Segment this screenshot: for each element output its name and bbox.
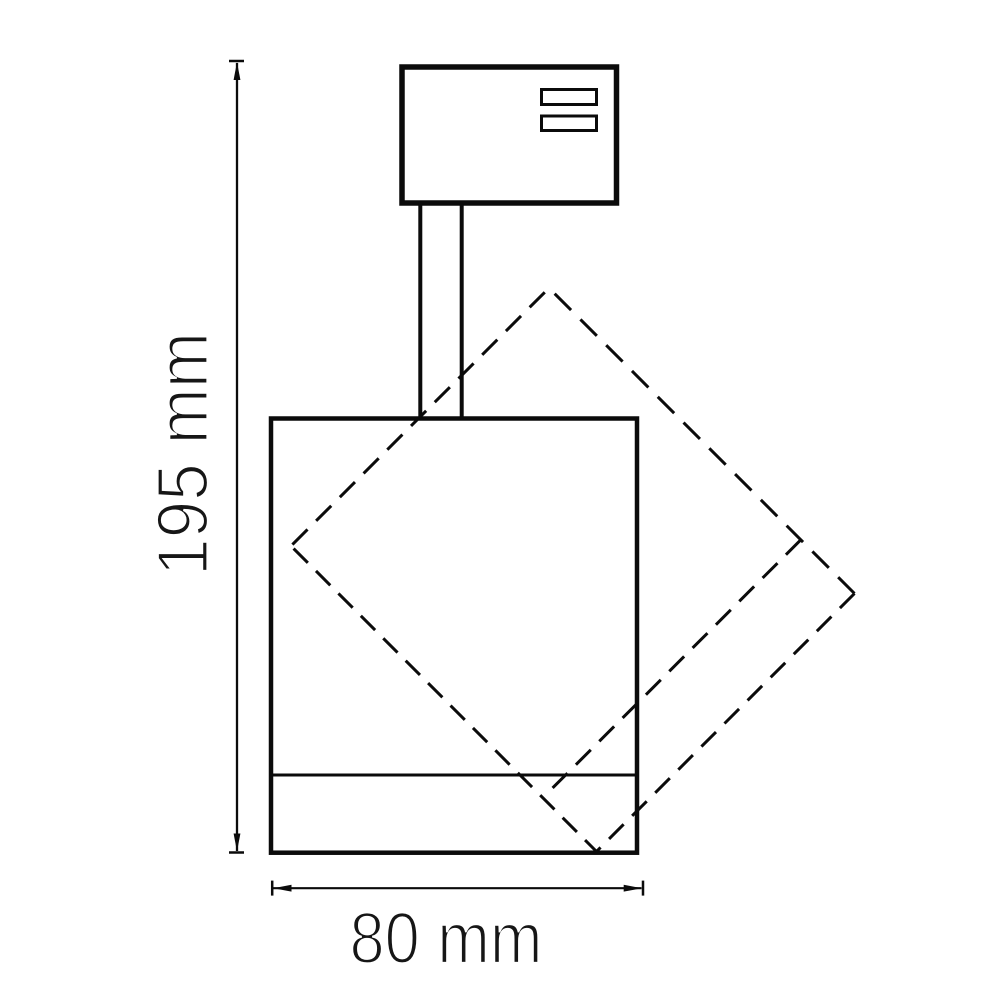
svg-text:80 mm: 80 mm	[350, 899, 543, 979]
svg-text:195 mm: 195 mm	[144, 332, 224, 576]
